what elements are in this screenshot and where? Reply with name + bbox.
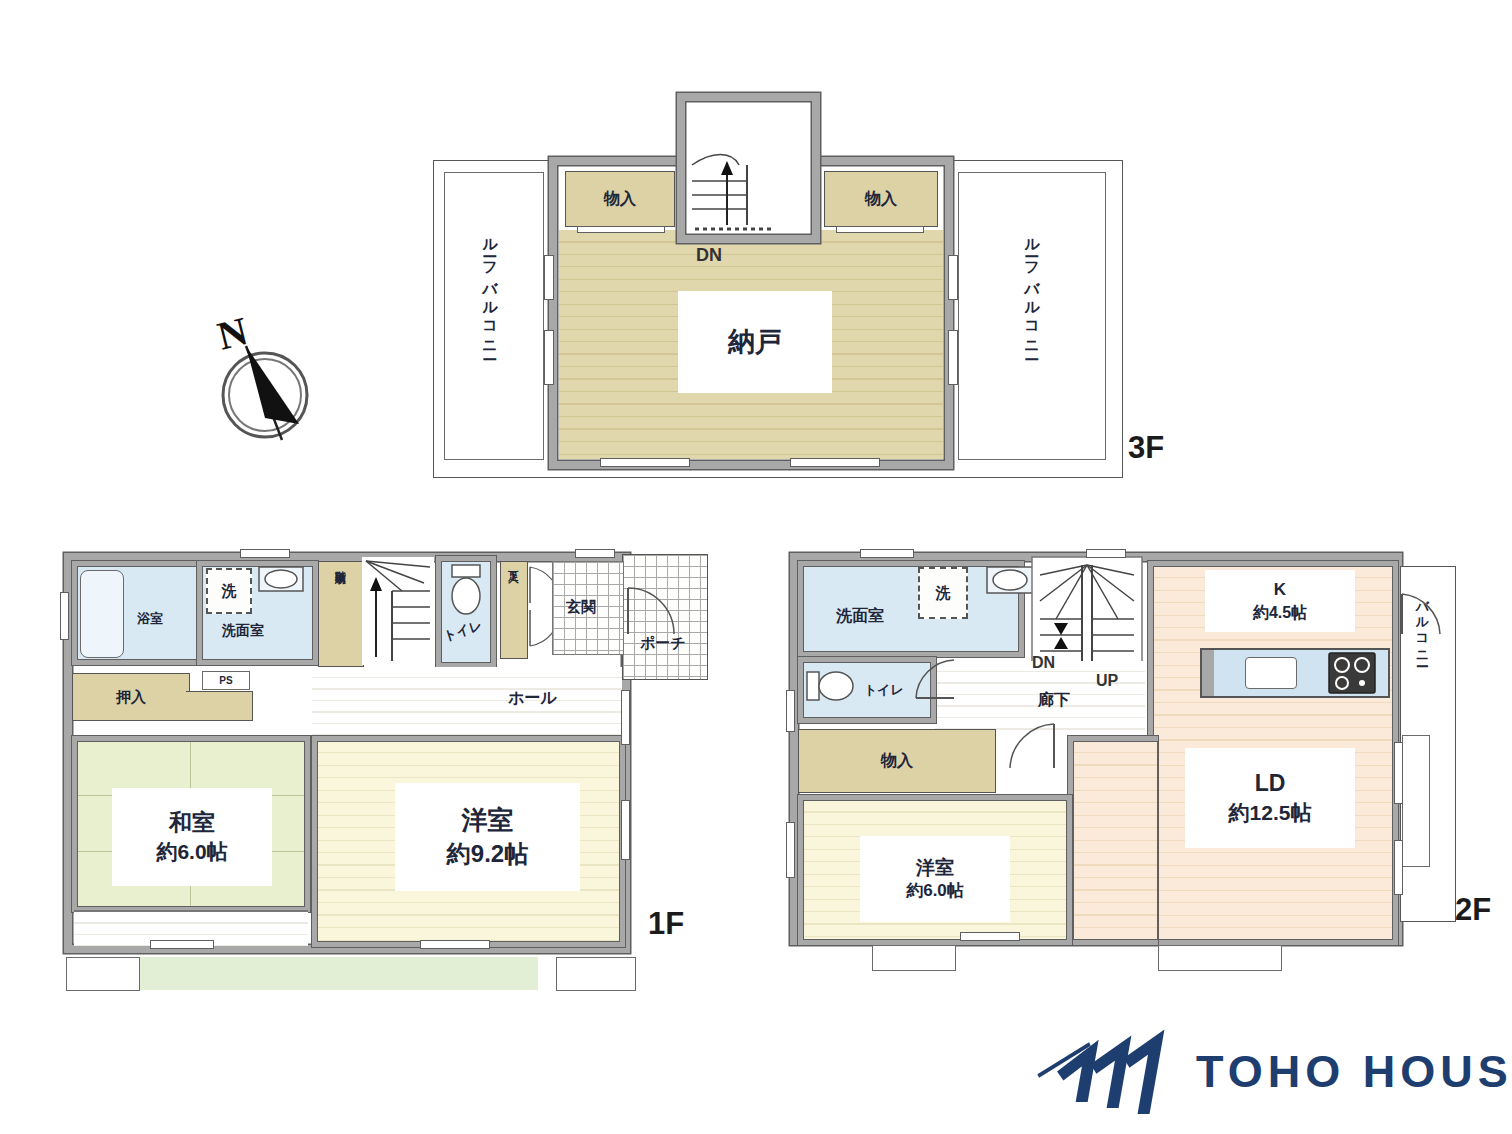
f3-stairs-icon <box>687 103 810 235</box>
f2-washer-label: 洗 <box>936 584 951 603</box>
f3-window-bottom-2 <box>790 458 880 467</box>
f2-window-right-1 <box>1394 742 1403 804</box>
f2-stairs-up-label: UP <box>1096 672 1118 690</box>
f2-closet: 物入 <box>798 729 996 793</box>
f2-window-bottom-1 <box>960 932 1020 941</box>
f3-window-left-1 <box>544 255 554 300</box>
f1-window-right-1 <box>621 690 630 745</box>
f3-closet-left-label: 物入 <box>604 189 636 210</box>
f1-washroom-label: 洗面室 <box>222 622 264 640</box>
f2-window-right-2 <box>1394 840 1403 895</box>
f3-stairs-down-label: DN <box>696 245 722 266</box>
f1-entrance-label: 玄関 <box>566 598 596 617</box>
f3-storage-room-label: 納戸 <box>728 324 782 360</box>
f2-sink-icon <box>986 566 1034 594</box>
toho-house-logo-text: TOHO HOUSE <box>1196 1046 1512 1098</box>
f2-window-left-1 <box>786 690 795 732</box>
f2-kitchen-size: 約4.5帖 <box>1253 602 1307 624</box>
f2-washroom-door-icon <box>914 658 956 700</box>
f3-sliding-door-left <box>577 226 665 233</box>
f1-sink-icon <box>258 566 304 592</box>
f1-bathroom-label: 浴室 <box>137 610 163 628</box>
f1-japanese-room-label: 和室 <box>169 807 215 838</box>
f1-entrance-door-icon <box>626 586 676 636</box>
f3-closet-right-label: 物入 <box>865 189 897 210</box>
compass-north-icon <box>185 300 330 450</box>
f2-balcony-inner <box>1402 735 1430 867</box>
f1-porch-label: ポーチ <box>640 634 686 653</box>
f1-step-left <box>66 957 140 991</box>
f2-counter-endcap <box>1202 650 1214 696</box>
f2-kitchen-label: K <box>1274 579 1286 602</box>
f1-under-stair-storage: 階段下収納 <box>318 561 364 667</box>
f1-japanese-room-labelbox: 和室 約6.0帖 <box>112 788 272 886</box>
f2-toilet-label: トイレ <box>864 681 904 699</box>
f2-ld-extension <box>1068 736 1158 945</box>
f2-window-left-2 <box>786 822 795 878</box>
f3-storage-room-labelbox: 納戸 <box>678 291 832 393</box>
f1-pipe-space: PS <box>202 671 250 690</box>
f2-toilet-icon <box>806 664 858 708</box>
f2-floor-label: 2F <box>1455 892 1491 928</box>
f3-floor-label: 3F <box>1128 430 1164 466</box>
f1-washer-box: 洗 <box>206 568 252 614</box>
f2-kitchen-labelbox: K 約4.5帖 <box>1205 570 1355 632</box>
f1-floor-label: 1F <box>648 906 684 942</box>
toho-house-logo-icon <box>1032 1032 1184 1114</box>
f1-window-bottom-2 <box>420 940 490 949</box>
f2-step-left <box>872 945 956 971</box>
f2-washer-box: 洗 <box>918 567 968 619</box>
f1-window-top-1 <box>240 549 290 558</box>
f1-hall <box>312 667 622 737</box>
f2-stairs-down-label: DN <box>1032 654 1055 672</box>
f1-shoe-cabinet: 下足入 <box>500 561 528 659</box>
f1-bathtub <box>80 570 124 658</box>
f2-western-room-size: 約6.0帖 <box>906 880 964 903</box>
f2-stove-icon <box>1328 652 1376 694</box>
f1-closet-oshiire-ext <box>186 691 253 721</box>
f1-step-right <box>556 957 636 991</box>
f3-window-bottom-1 <box>600 458 690 467</box>
f1-shoe-cabinet-label: 下足入 <box>507 562 521 658</box>
f1-window-left-1 <box>60 592 69 640</box>
f2-ld-labelbox: LD 約12.5帖 <box>1185 748 1355 848</box>
f3-window-right-1 <box>948 255 958 300</box>
f1-japanese-room-size: 約6.0帖 <box>156 838 227 866</box>
f3-sliding-door-right <box>836 226 924 233</box>
f3-closet-right: 物入 <box>824 171 938 227</box>
f2-stairs-icon <box>1032 557 1142 663</box>
f3-window-right-2 <box>948 330 958 385</box>
f3-window-left-2 <box>544 330 554 385</box>
f2-kitchen-sink <box>1245 657 1297 689</box>
f2-window-top-1 <box>860 549 914 558</box>
f1-window-right-2 <box>621 800 630 860</box>
f1-window-top-2 <box>575 549 615 558</box>
f1-washer-label: 洗 <box>222 582 237 601</box>
f1-western-room-labelbox: 洋室 約9.2帖 <box>395 783 580 891</box>
floor-plan-canvas: N ルーフバルコニー ルーフバルコニー 物入 物入 DN 納戸 3F ポ <box>0 0 1512 1134</box>
f2-step-right <box>1158 945 1282 971</box>
f2-corridor-label: 廊下 <box>1038 690 1070 711</box>
f1-toilet-icon <box>446 564 486 616</box>
f1-pipe-space-label: PS <box>219 675 232 686</box>
f1-western-room-size: 約9.2帖 <box>447 838 528 870</box>
f1-under-stair-storage-label: 階段下収納 <box>334 562 348 666</box>
f3-closet-left: 物入 <box>565 171 675 227</box>
f2-western-room-label: 洋室 <box>916 855 954 881</box>
f1-hall-label: ホール <box>508 688 557 709</box>
f2-ld-size: 約12.5帖 <box>1229 799 1312 827</box>
f2-western-room-labelbox: 洋室 約6.0帖 <box>860 836 1010 922</box>
f2-balcony-door-icon <box>1400 592 1442 636</box>
f1-closet-oshiire-label: 押入 <box>116 688 146 707</box>
f2-ld-label: LD <box>1255 768 1286 799</box>
f1-stairs-icon <box>362 557 434 665</box>
f2-closet-label: 物入 <box>881 751 913 772</box>
f1-closet-oshiire: 押入 <box>72 673 190 721</box>
f2-western-room-door-icon <box>1008 722 1056 770</box>
f2-washroom-label: 洗面室 <box>836 606 884 627</box>
f3-roof-balcony-left-label: ルーフバルコニー <box>480 228 499 354</box>
f1-window-bottom-1 <box>150 940 214 949</box>
f2-window-top-2 <box>1086 549 1126 558</box>
f1-western-room-label: 洋室 <box>462 803 514 838</box>
f3-roof-balcony-right-label: ルーフバルコニー <box>1022 228 1041 354</box>
